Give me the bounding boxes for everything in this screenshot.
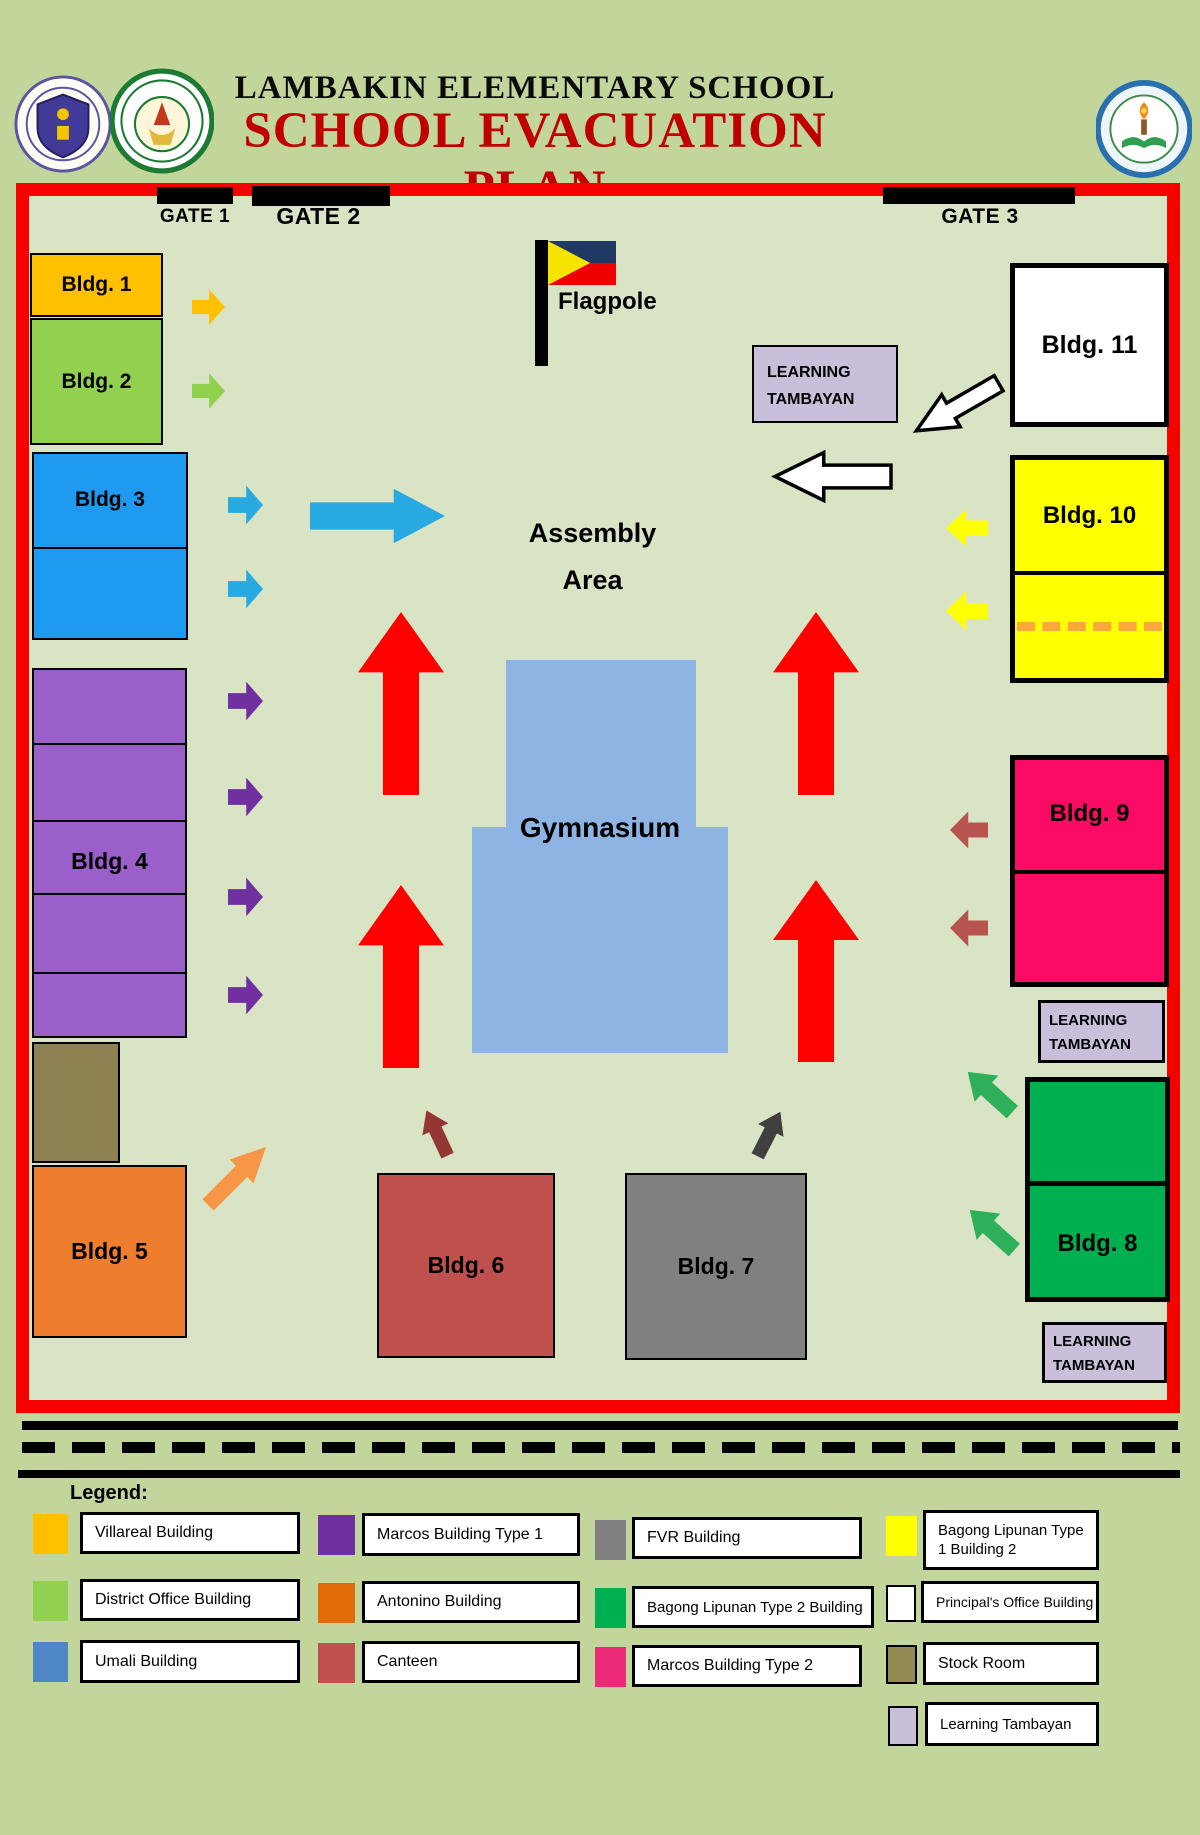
- building-label: Bldg. 9: [1015, 800, 1164, 828]
- legend-swatch-bagong-lipunan-1: [886, 1516, 917, 1556]
- legend-swatch-stock-room: [886, 1645, 917, 1684]
- assembly-arrow-left-bottom-icon: [358, 885, 444, 1068]
- evac-arrow-to-assembly-blue-icon: [310, 485, 445, 547]
- legend-item-bagong-lipunan-2: Bagong Lipunan Type 2 Building: [632, 1586, 874, 1628]
- legend-item-learning-tambayan: Learning Tambayan: [925, 1702, 1099, 1746]
- legend-swatch-learning-tambayan: [888, 1706, 918, 1746]
- evac-arrow-bldg1-icon: [192, 286, 225, 328]
- learning-tambayan-box-south: LEARNING TAMBAYAN: [1042, 1322, 1167, 1383]
- evacuation-plan-poster: { "header": { "school_name": "LAMBAKIN E…: [0, 0, 1200, 1835]
- stock-room: [32, 1042, 120, 1163]
- evac-arrow-bldg2-icon: [192, 370, 225, 412]
- building-bldg-3: Bldg. 3: [32, 452, 188, 640]
- legend-swatch-district-office: [33, 1581, 68, 1621]
- legend-swatch-principals-office: [886, 1585, 916, 1622]
- legend-item-bagong-lipunan-1: Bagong Lipunan Type 1 Building 2: [923, 1510, 1099, 1570]
- evac-arrow-bldg9-lower-icon: [950, 906, 988, 950]
- legend-item-principals-office: Principal's Office Building: [921, 1581, 1099, 1623]
- flagpole-label: Flagpole: [558, 288, 657, 316]
- building-bldg-10: Bldg. 10: [1010, 455, 1169, 683]
- legend-swatch-bagong-lipunan-2: [595, 1588, 626, 1628]
- flagpole-pole: [535, 240, 548, 366]
- philippine-flag-icon: [548, 241, 616, 285]
- building-label: Bldg. 10: [1015, 502, 1164, 530]
- building-label: Bldg. 3: [34, 488, 186, 512]
- building-label: Bldg. 8: [1030, 1230, 1165, 1258]
- road-center-dashed-line: [22, 1442, 1180, 1453]
- building-bldg-1: Bldg. 1: [30, 253, 163, 317]
- building-label: Bldg. 4: [34, 848, 185, 875]
- legend-title: Legend:: [70, 1482, 148, 1505]
- school-seal-logo: [1096, 76, 1192, 182]
- assembly-arrow-right-bottom-icon: [773, 880, 859, 1062]
- deped-seal-logo: [14, 66, 112, 182]
- building-label: Bldg. 6: [428, 1252, 505, 1279]
- legend-swatch-fvr: [595, 1520, 626, 1560]
- building-bldg-11: Bldg. 11: [1010, 263, 1169, 427]
- legend-item-marcos-type-2: Marcos Building Type 2: [632, 1645, 862, 1687]
- building-label: Bldg. 5: [71, 1238, 148, 1265]
- road-edge-line-top: [22, 1421, 1178, 1430]
- legend-swatch-marcos-type-2: [595, 1647, 626, 1687]
- legend-item-antonino: Antonino Building: [362, 1581, 580, 1623]
- gymnasium-upper: [506, 660, 696, 830]
- building-bldg-6: Bldg. 6: [377, 1173, 555, 1358]
- gate-2-label: GATE 2: [256, 203, 381, 230]
- assembly-area-label: Assembly Area: [455, 510, 730, 604]
- gate-1-bar: [157, 187, 233, 204]
- legend-item-stock-room: Stock Room: [923, 1642, 1099, 1685]
- legend-swatch-canteen: [318, 1643, 355, 1683]
- building-label: Bldg. 2: [61, 370, 131, 394]
- building-bldg-4: Bldg. 4: [32, 668, 187, 1038]
- assembly-arrow-right-top-icon: [773, 612, 859, 795]
- building-label: Bldg. 11: [1042, 331, 1138, 360]
- legend-swatch-villareal: [33, 1514, 68, 1554]
- legend-item-villareal: Villareal Building: [80, 1512, 300, 1554]
- legend-item-marcos-type-1: Marcos Building Type 1: [362, 1513, 580, 1556]
- road-edge-line-bottom: [18, 1470, 1180, 1478]
- legend-item-umali: Umali Building: [80, 1640, 300, 1683]
- legend-item-district-office: District Office Building: [80, 1579, 300, 1621]
- evac-arrow-bldg3-lower-icon: [228, 566, 263, 612]
- building-bldg-9: Bldg. 9: [1010, 755, 1169, 987]
- evac-arrow-bldg11-left-icon: [775, 448, 891, 505]
- building-bldg-8: Bldg. 8: [1025, 1077, 1170, 1302]
- route-dashed-line: [1017, 622, 1162, 631]
- evac-arrow-bldg10-upper-icon: [946, 506, 988, 550]
- legend-item-fvr: FVR Building: [632, 1517, 862, 1559]
- building-bldg-2: Bldg. 2: [30, 318, 163, 445]
- gate-3-bar: [883, 187, 1075, 204]
- evac-arrow-bldg4-1-icon: [228, 678, 263, 724]
- gate-3-label: GATE 3: [915, 205, 1045, 229]
- evac-arrow-bldg4-3-icon: [228, 874, 263, 920]
- learning-tambayan-box-mid: LEARNING TAMBAYAN: [1038, 1000, 1165, 1063]
- evac-arrow-bldg4-4-icon: [228, 972, 263, 1018]
- division-seal-logo: [110, 60, 214, 182]
- evac-arrow-bldg3-upper-icon: [228, 482, 263, 528]
- gymnasium-lower: [472, 827, 728, 1053]
- legend-swatch-antonino: [318, 1583, 355, 1623]
- gymnasium-label: Gymnasium: [460, 812, 740, 844]
- evac-arrow-bldg4-2-icon: [228, 774, 263, 820]
- learning-tambayan-box-north: LEARNING TAMBAYAN: [752, 345, 898, 423]
- evac-arrow-bldg9-upper-icon: [950, 808, 988, 852]
- legend-item-canteen: Canteen: [362, 1641, 580, 1683]
- building-label: Bldg. 1: [61, 273, 131, 297]
- legend-swatch-marcos-type-1: [318, 1515, 355, 1555]
- building-bldg-5: Bldg. 5: [32, 1165, 187, 1338]
- legend-swatch-umali: [33, 1642, 68, 1682]
- gate-1-label: GATE 1: [150, 206, 240, 228]
- building-label: Bldg. 7: [678, 1253, 755, 1280]
- building-bldg-7: Bldg. 7: [625, 1173, 807, 1360]
- assembly-arrow-left-top-icon: [358, 612, 444, 795]
- evac-arrow-bldg10-lower-icon: [946, 588, 988, 634]
